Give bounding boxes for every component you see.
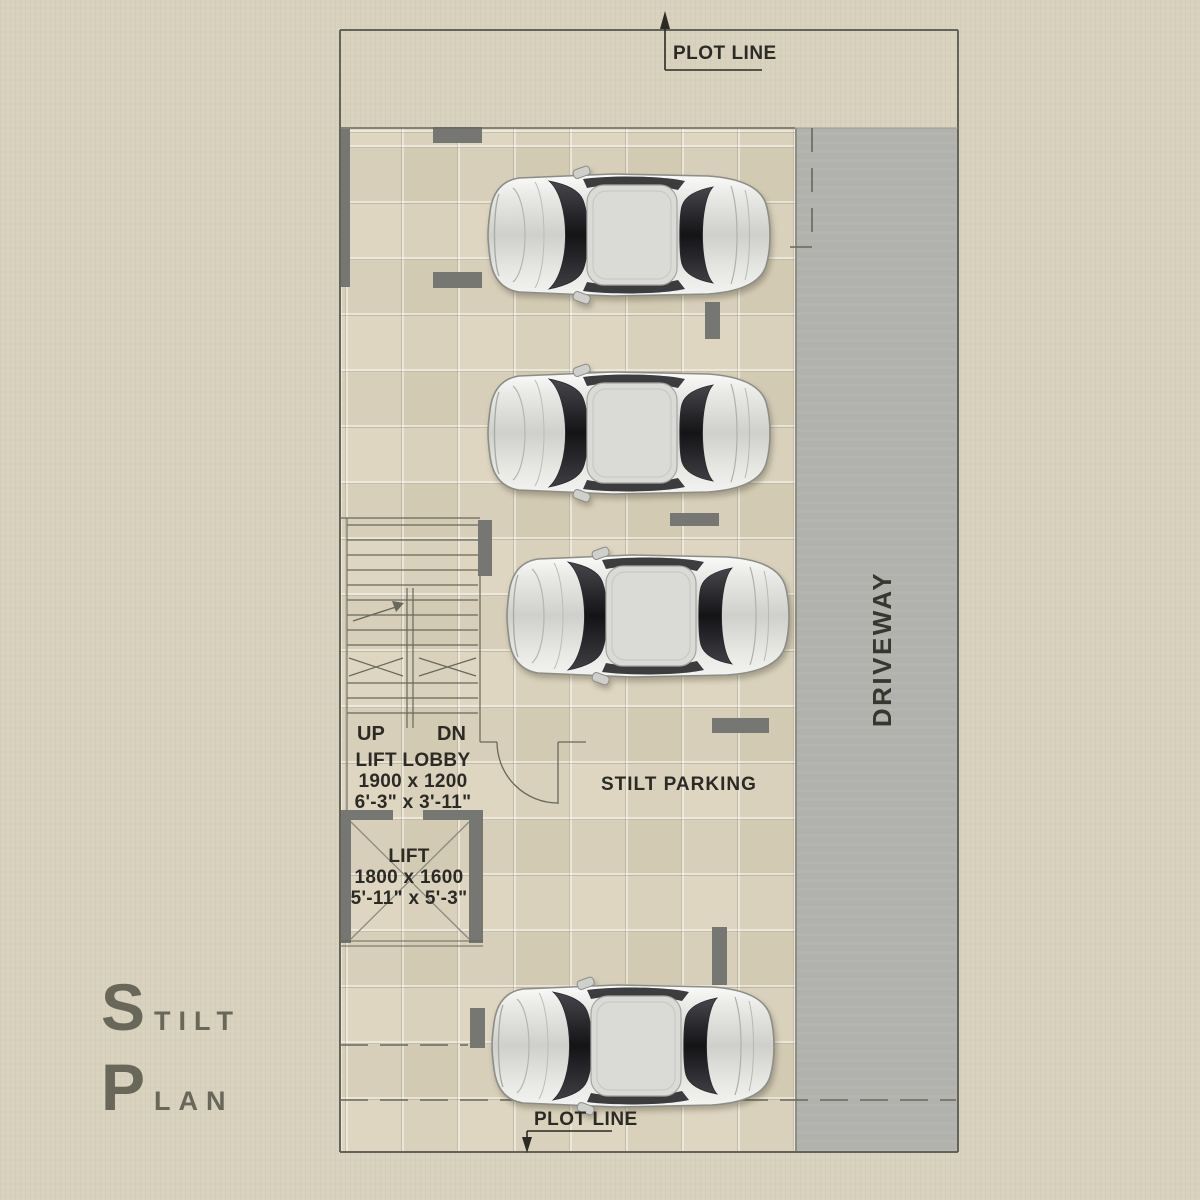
lift-label: LIFT 1800 x 1600 5'-11" x 5'-3" — [340, 846, 478, 909]
car-top-view — [483, 370, 773, 496]
column — [470, 1008, 485, 1048]
lift-lobby-dim-ft: 6'-3" x 3'-11" — [344, 792, 482, 813]
column — [712, 718, 769, 733]
column — [705, 302, 720, 339]
lift-dim-ft: 5'-11" x 5'-3" — [340, 888, 478, 909]
column — [712, 927, 727, 985]
stilt-plan-drawing: PLOT LINE PLOT LINE DRIVEWAY STILT PARKI… — [0, 0, 1200, 1200]
column — [478, 520, 492, 576]
car-top-view — [483, 172, 773, 298]
column — [433, 272, 482, 288]
column — [670, 513, 719, 526]
title-line-2: PLAN — [101, 1054, 241, 1134]
lift-lobby-dim-mm: 1900 x 1200 — [344, 771, 482, 792]
lift-dim-mm: 1800 x 1600 — [340, 867, 478, 888]
stair-up-label: UP — [357, 723, 385, 746]
plot-line-label-bottom: PLOT LINE — [534, 1109, 638, 1131]
wall-segment — [339, 129, 350, 287]
lift-lobby-label: LIFT LOBBY 1900 x 1200 6'-3" x 3'-11" — [344, 750, 482, 813]
arrow-up-icon — [660, 11, 670, 29]
lift-lobby-name: LIFT LOBBY — [344, 750, 482, 771]
car-top-view — [487, 983, 777, 1109]
car-top-view — [502, 553, 792, 679]
stair-dn-label: DN — [437, 723, 466, 746]
title-line-1: STILT — [101, 974, 241, 1054]
stilt-parking-label: STILT PARKING — [601, 774, 757, 796]
column — [433, 127, 482, 143]
driveway-label: DRIVEWAY — [867, 549, 897, 749]
plot-line-label-top: PLOT LINE — [673, 43, 777, 65]
page-title: STILT PLAN — [101, 974, 241, 1134]
lift-name: LIFT — [340, 846, 478, 867]
